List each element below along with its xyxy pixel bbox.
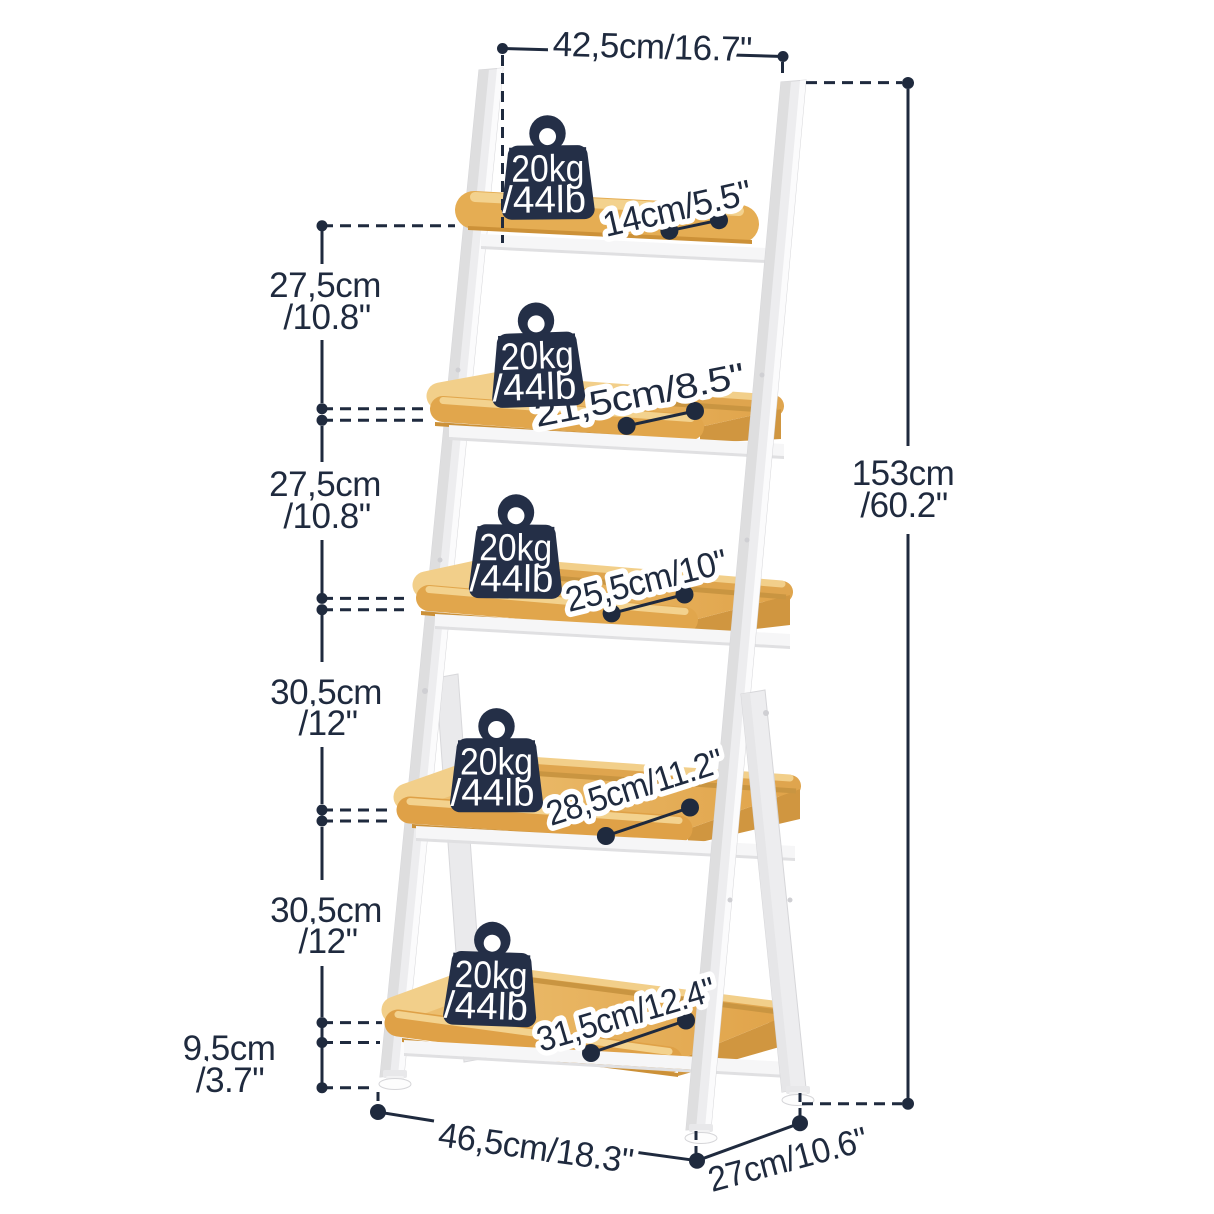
svg-text:/12": /12" [298, 704, 357, 743]
svg-text:/3.7": /3.7" [196, 1061, 264, 1100]
svg-text:/12": /12" [298, 922, 357, 961]
svg-text:46,5cm/18.3": 46,5cm/18.3" [436, 1115, 636, 1181]
svg-text:/60.2": /60.2" [860, 486, 947, 525]
svg-text:/10.8": /10.8" [283, 497, 370, 536]
svg-text:/10.8": /10.8" [283, 298, 370, 337]
svg-text:27cm/10.6": 27cm/10.6" [704, 1120, 872, 1200]
svg-text:42,5cm/16.7": 42,5cm/16.7" [552, 25, 752, 70]
